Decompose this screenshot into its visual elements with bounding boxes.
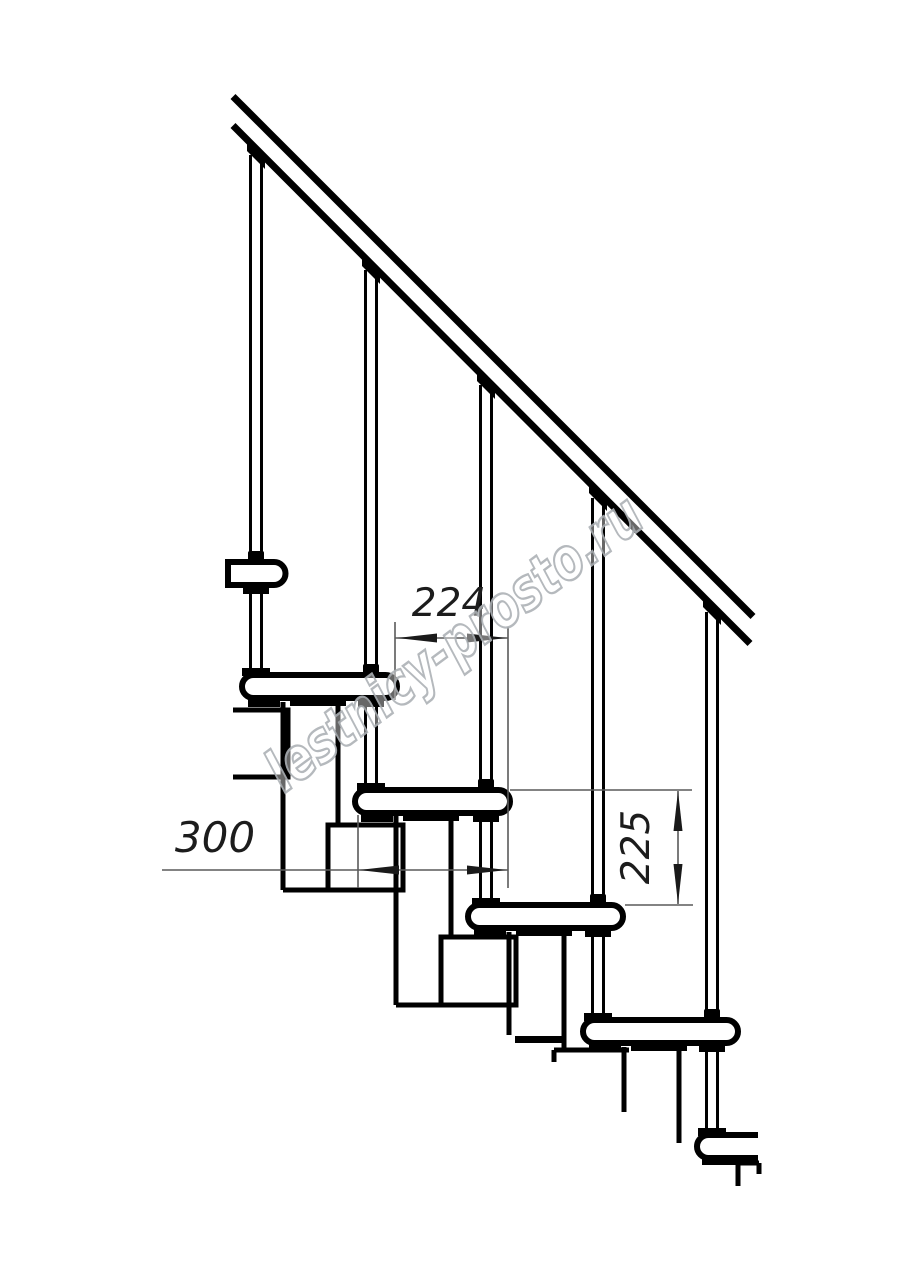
nose-clamp xyxy=(585,929,611,937)
module-step4-cut xyxy=(624,1047,679,1143)
stair-drawing-sheet: 224 300 225 lestnicy-prosto.ru xyxy=(0,0,914,1280)
tread-4 xyxy=(583,1020,738,1043)
arrow-up-icon xyxy=(674,791,683,831)
dimension-label-225: 225 xyxy=(614,810,659,884)
baluster-collar xyxy=(704,1009,720,1020)
dimension-225: 225 xyxy=(510,790,693,905)
tread-3 xyxy=(468,905,623,928)
baluster-collar xyxy=(478,779,494,790)
module-step3-clamp xyxy=(515,1036,563,1043)
baluster-5 xyxy=(707,612,718,1132)
tread-hardware xyxy=(242,144,757,1165)
module-square-1 xyxy=(328,825,403,890)
stair-elevation-drawing: 224 300 225 lestnicy-prosto.ru xyxy=(0,0,914,1280)
arrow-down-icon xyxy=(674,864,683,904)
nose-clamp xyxy=(699,1044,725,1052)
baluster-base xyxy=(698,1128,726,1136)
baluster-1 xyxy=(251,155,262,672)
baluster-collar xyxy=(590,894,606,905)
tread-5-cut xyxy=(697,1135,758,1158)
module-square-2 xyxy=(441,937,516,1005)
nose-clamp xyxy=(243,586,269,594)
baluster-base xyxy=(584,1013,612,1021)
baluster-base xyxy=(472,898,500,906)
baluster-base xyxy=(242,668,270,676)
baluster-collar xyxy=(248,551,264,562)
module-step5-cut xyxy=(738,1163,759,1186)
nose-clamp xyxy=(473,814,499,822)
dimension-label-300: 300 xyxy=(175,813,255,862)
arrow-right-icon xyxy=(467,866,507,875)
baluster-base xyxy=(357,783,385,791)
tread-upper-cut xyxy=(228,562,286,585)
watermark-text: lestnicy-prosto.ru xyxy=(252,481,655,805)
tread-2 xyxy=(355,790,510,813)
arrow-left-icon xyxy=(359,866,399,875)
